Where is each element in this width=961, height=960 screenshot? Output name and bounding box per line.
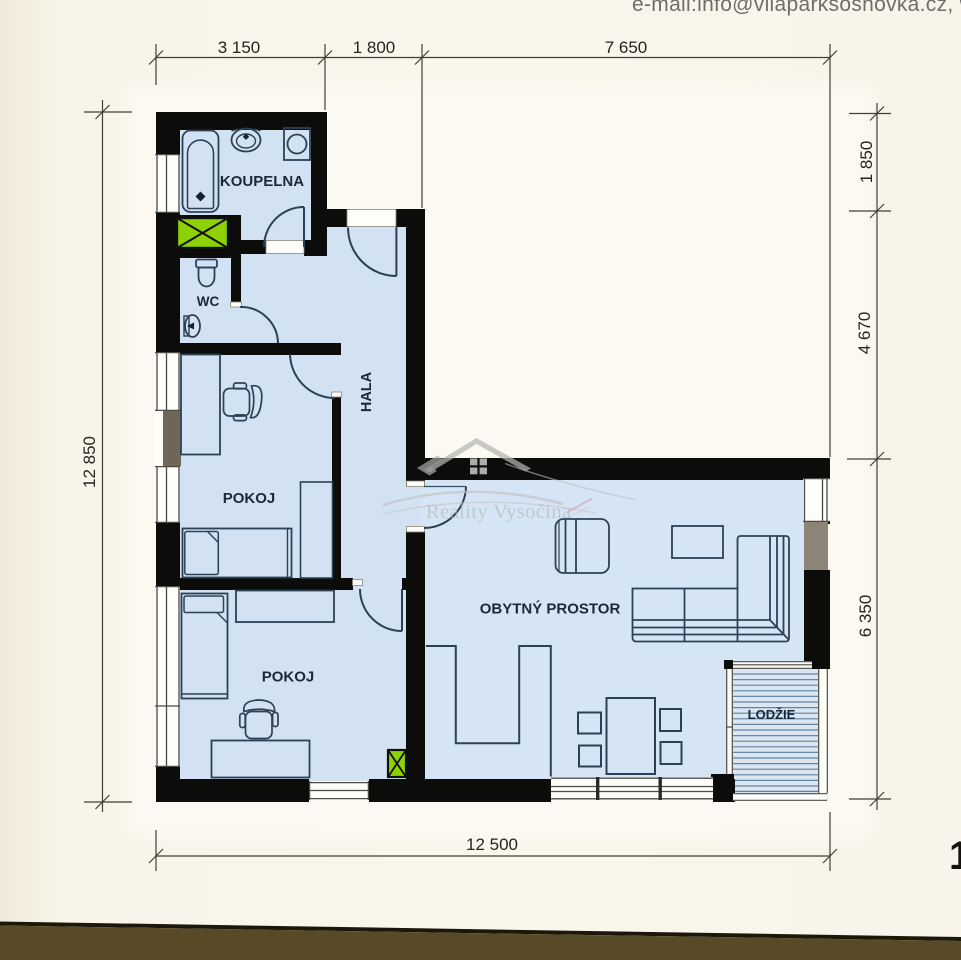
svg-text:POKOJ: POKOJ: [262, 669, 315, 686]
svg-text:12 500: 12 500: [466, 835, 518, 854]
svg-text:e-mail:info@vilaparksosnovka.c: e-mail:info@vilaparksosnovka.cz, www.vil…: [632, 0, 961, 16]
svg-text:1 850: 1 850: [857, 141, 876, 184]
svg-text:12 850: 12 850: [80, 436, 99, 488]
svg-text:6 350: 6 350: [856, 595, 875, 638]
svg-text:WC: WC: [197, 294, 220, 309]
svg-text:POKOJ: POKOJ: [223, 490, 276, 507]
svg-text:1: 1: [949, 834, 961, 878]
svg-text:HALA: HALA: [359, 371, 375, 412]
svg-text:LODŽIE: LODŽIE: [748, 707, 796, 722]
svg-text:Reality Vysočina: Reality Vysočina: [426, 501, 572, 523]
svg-text:7 650: 7 650: [605, 38, 648, 57]
svg-text:3 150: 3 150: [218, 38, 261, 57]
svg-text:4 670: 4 670: [855, 312, 874, 355]
svg-text:1 800: 1 800: [353, 38, 396, 57]
svg-text:KOUPELNA: KOUPELNA: [220, 173, 304, 190]
svg-text:OBYTNÝ PROSTOR: OBYTNÝ PROSTOR: [480, 600, 621, 618]
